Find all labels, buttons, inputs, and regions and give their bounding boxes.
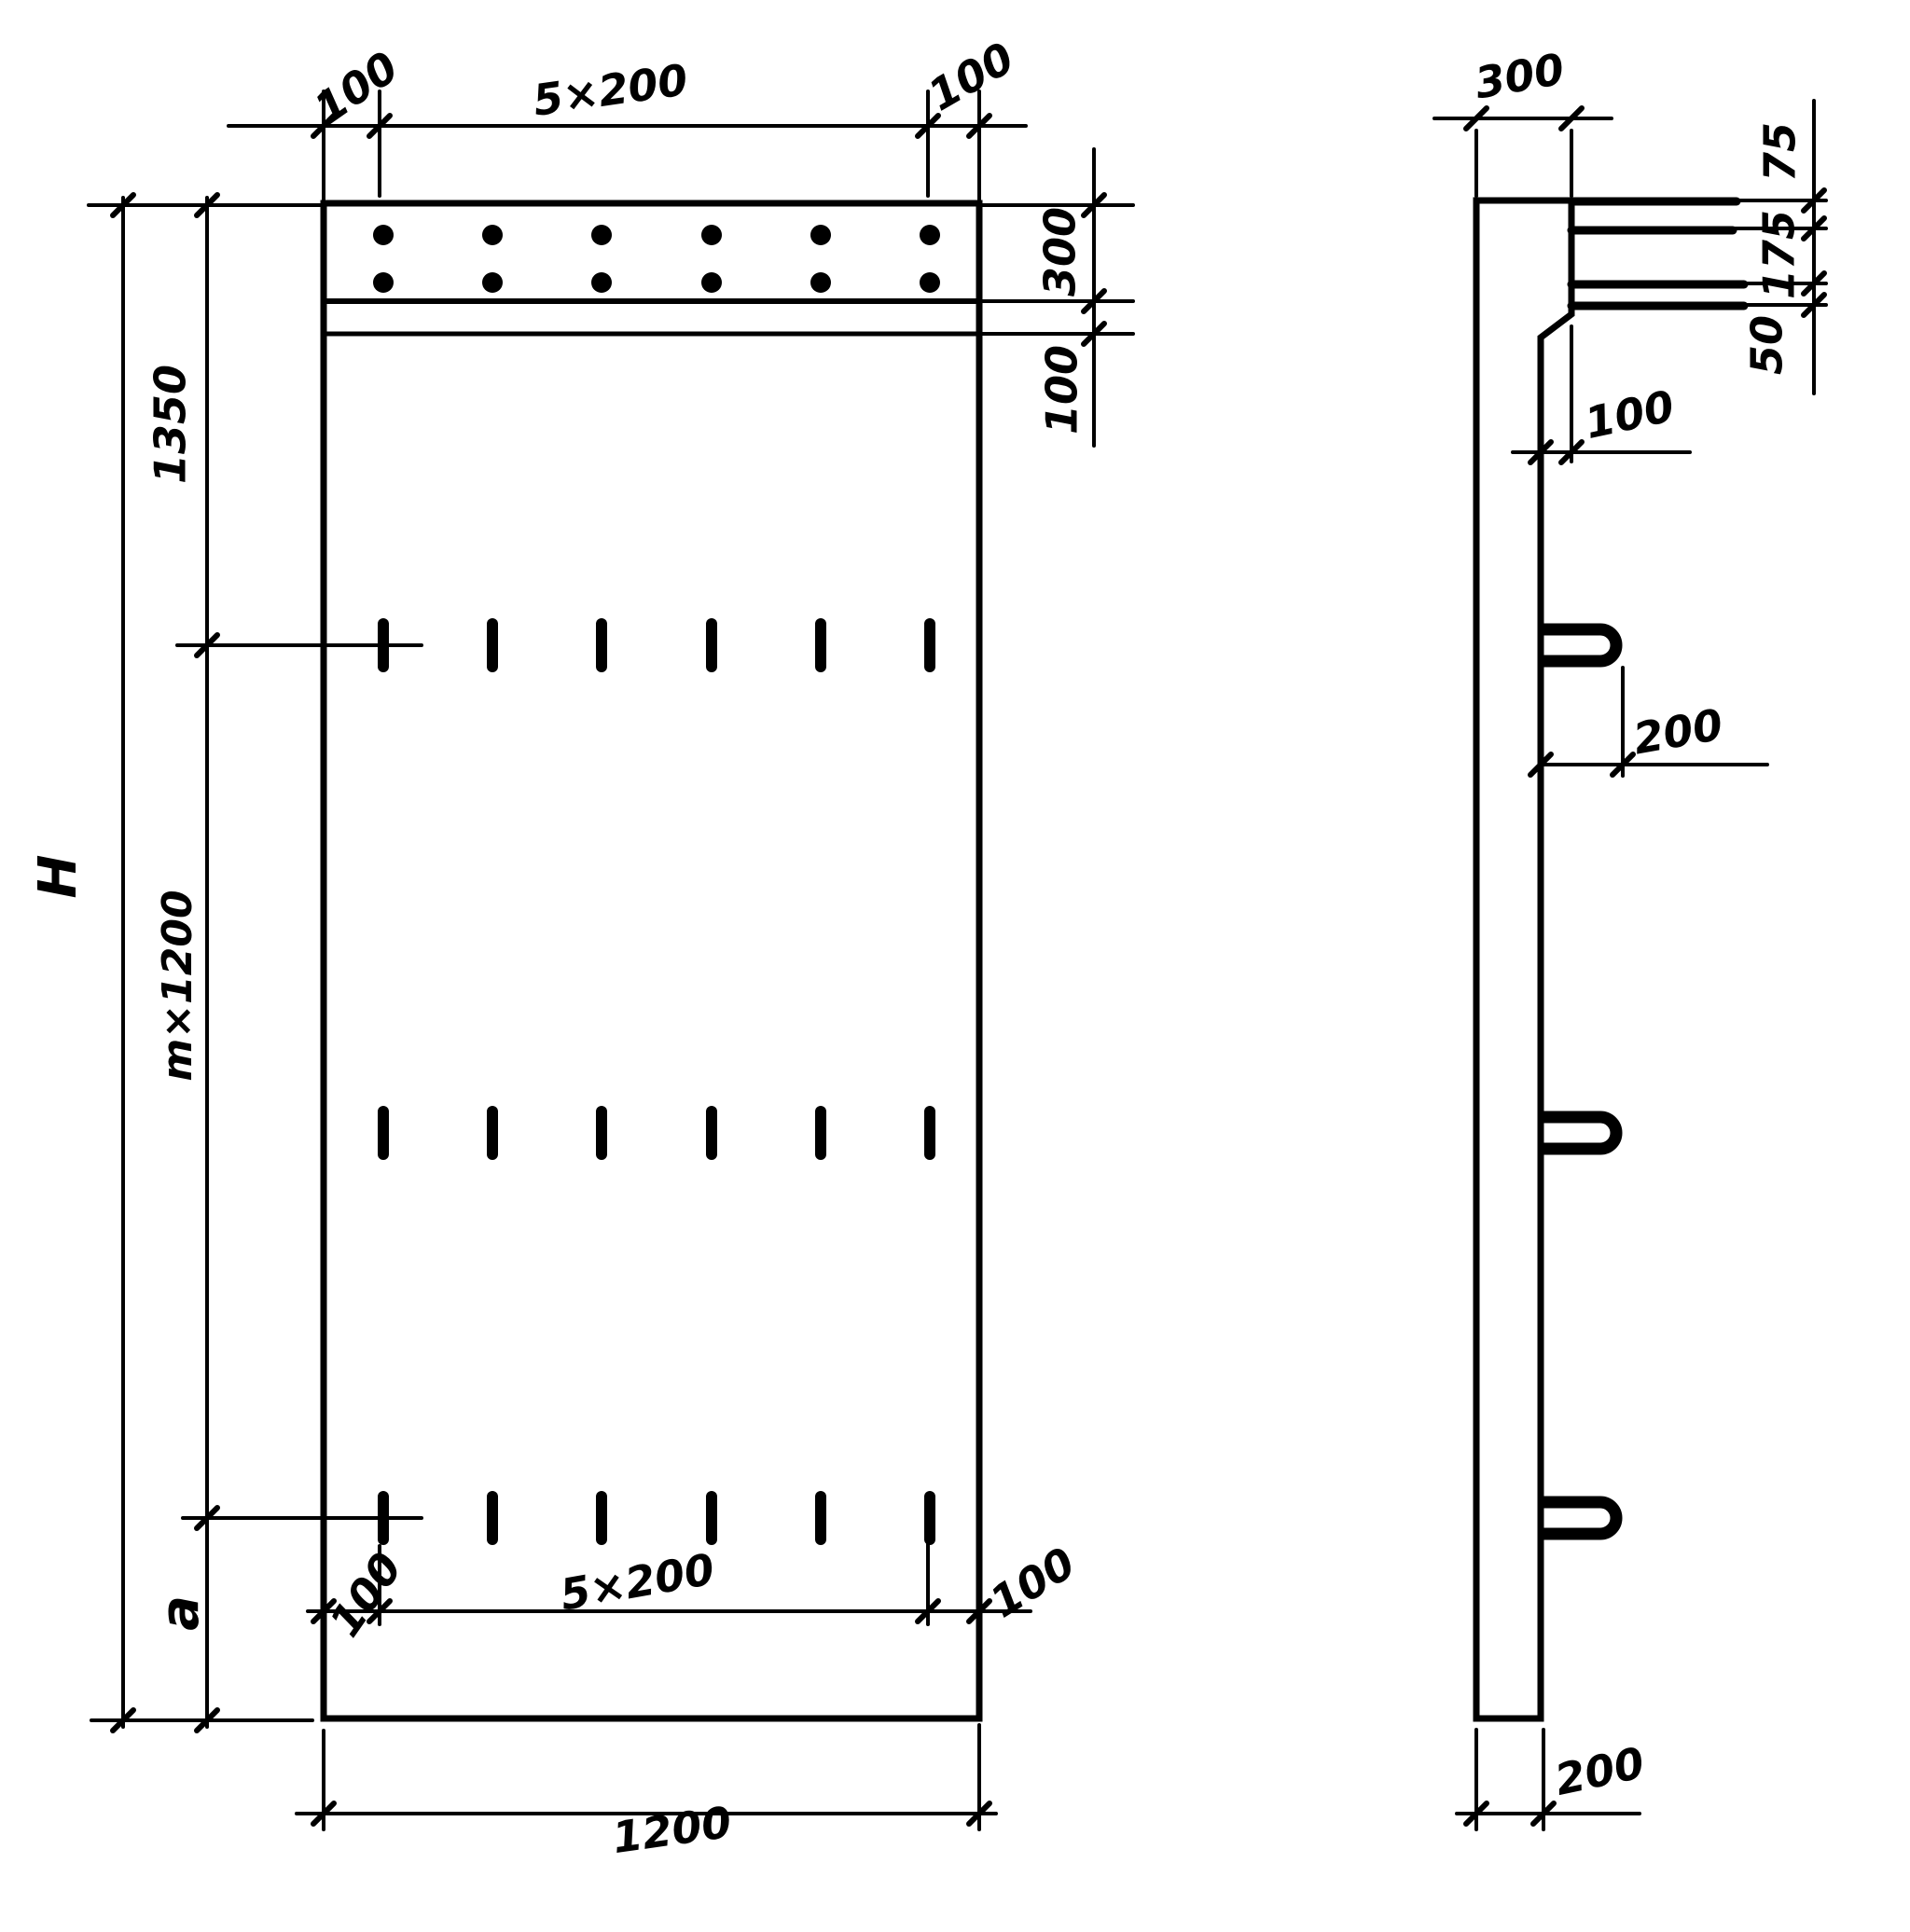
- dot: [591, 272, 612, 293]
- dim-label-bar-top-offset: 75: [1755, 122, 1806, 182]
- dot: [920, 272, 940, 293]
- lifting-loop: [1541, 1502, 1616, 1534]
- dim-label-top-width: 300: [1471, 44, 1568, 109]
- panel-technical-drawing: 100 5×200 100 300 100 1350 m×1200 a H 10…: [0, 0, 1910, 1932]
- slot-dash: [924, 1106, 935, 1160]
- dot: [701, 225, 722, 245]
- dot: [482, 272, 503, 293]
- dim-label-overall-width: 1200: [609, 1797, 734, 1863]
- dot: [810, 225, 831, 245]
- dot: [920, 225, 940, 245]
- dim-label-bottom-thickness: 200: [1551, 1737, 1649, 1805]
- dot: [373, 272, 394, 293]
- lifting-loop: [1541, 629, 1616, 661]
- dim-label-top-pitch: 5×200: [530, 54, 690, 126]
- dim-label-top-left-margin: 100: [305, 41, 408, 133]
- slot-dash: [706, 1106, 717, 1160]
- slot-dash: [596, 618, 607, 672]
- dim-label-loop-length: 200: [1629, 699, 1726, 765]
- dot: [591, 225, 612, 245]
- slot-dash: [706, 1491, 717, 1545]
- dot: [701, 272, 722, 293]
- lifting-loop: [1541, 1117, 1616, 1149]
- dim-label-left-top-segment: 1350: [145, 365, 196, 484]
- protruding-bars: [1571, 201, 1744, 306]
- dim-label-bottom-right-margin: 100: [981, 1538, 1084, 1628]
- dim-label-total-height: H: [28, 855, 89, 899]
- slot-dash: [924, 618, 935, 672]
- dim-label-bottom-pitch: 5×200: [557, 1544, 718, 1621]
- dim-label-bottom-left-margin: 100: [319, 1543, 411, 1646]
- anchor-hole-dots: [373, 225, 940, 293]
- dim-label-chamfer: 100: [1581, 380, 1679, 448]
- slot-dash: [815, 1106, 826, 1160]
- front-view: 100 5×200 100 300 100 1350 m×1200 a H 10…: [28, 33, 1133, 1864]
- slot-dash: [487, 1106, 498, 1160]
- side-outline: [1476, 200, 1571, 1718]
- slot-dashes: [378, 618, 935, 1545]
- slot-dash: [596, 1106, 607, 1160]
- panel-outline: [324, 203, 979, 1718]
- dim-label-top-right-margin: 100: [920, 33, 1022, 121]
- dim-label-band-height: 300: [1035, 207, 1086, 297]
- slot-dash: [378, 1106, 389, 1160]
- slot-dash: [706, 618, 717, 672]
- dot: [373, 225, 394, 245]
- dim-label-bar-bottom-offset: 50: [1742, 315, 1792, 375]
- slot-dash: [815, 618, 826, 672]
- dim-label-left-middle-segment: m×1200: [154, 890, 201, 1081]
- side-view: 300 75 175 50 100 200 200: [1434, 44, 1826, 1829]
- dim-label-left-bottom-segment: a: [150, 1595, 211, 1631]
- dot: [810, 272, 831, 293]
- slot-dash: [487, 618, 498, 672]
- dim-label-band-gap: 100: [1037, 345, 1087, 435]
- slot-dash: [487, 1491, 498, 1545]
- slot-dash: [815, 1491, 826, 1545]
- dim-label-bar-middle-offset: 175: [1754, 210, 1805, 299]
- slot-dash: [596, 1491, 607, 1545]
- dot: [482, 225, 503, 245]
